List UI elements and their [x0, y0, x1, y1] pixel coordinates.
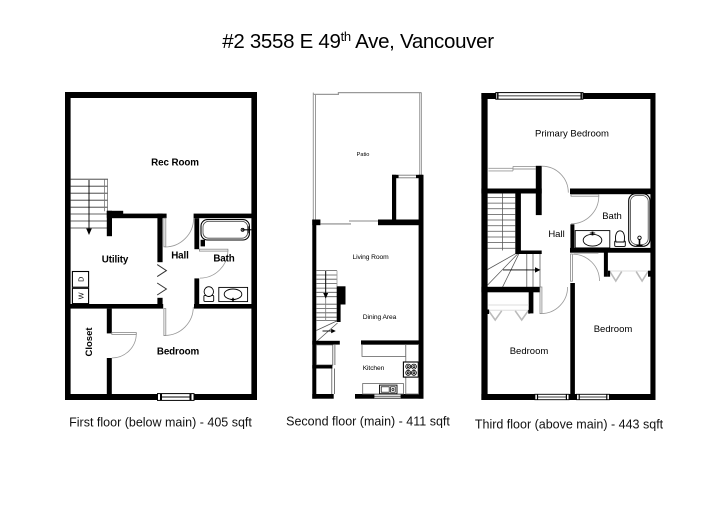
svg-text:Second floor (main) - 411 sqft: Second floor (main) - 411 sqft	[286, 415, 450, 429]
svg-text:Bath: Bath	[602, 211, 622, 222]
svg-text:#2 3558 E 49th Ave, Vancouver: #2 3558 E 49th Ave, Vancouver	[222, 29, 494, 53]
svg-text:Hall: Hall	[171, 251, 189, 262]
svg-text:Bedroom: Bedroom	[510, 346, 549, 357]
svg-text:Dining Area: Dining Area	[363, 314, 397, 321]
svg-text:Kitchen: Kitchen	[363, 365, 385, 372]
svg-text:W: W	[76, 292, 85, 299]
svg-text:Closet: Closet	[84, 327, 95, 357]
svg-text:Bedroom: Bedroom	[157, 347, 200, 358]
svg-text:Utility: Utility	[102, 255, 129, 266]
svg-text:Bath: Bath	[213, 254, 234, 265]
svg-text:D: D	[76, 277, 85, 282]
svg-text:Primary Bedroom: Primary Bedroom	[535, 128, 609, 139]
svg-text:Patio: Patio	[357, 152, 370, 158]
svg-text:First floor (below main) - 405: First floor (below main) - 405 sqft	[69, 416, 252, 430]
svg-text:Bedroom: Bedroom	[594, 324, 633, 335]
svg-text:Hall: Hall	[548, 229, 564, 240]
svg-text:Rec Room: Rec Room	[151, 158, 199, 169]
svg-text:Third floor (above main) - 443: Third floor (above main) - 443 sqft	[475, 418, 664, 432]
svg-text:Living Room: Living Room	[353, 254, 390, 261]
